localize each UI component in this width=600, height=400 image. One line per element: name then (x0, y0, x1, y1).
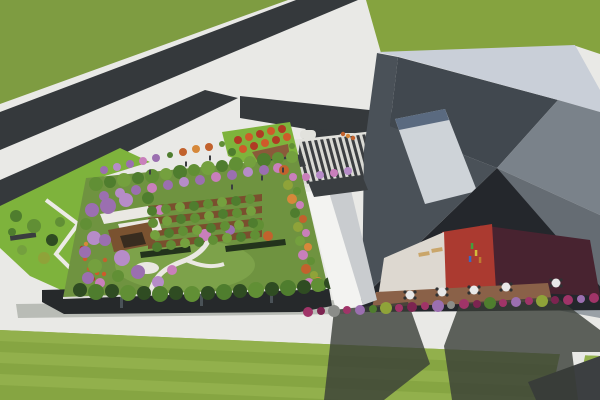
flower-icon (103, 258, 107, 262)
tree-icon (263, 231, 273, 241)
tree-icon (113, 163, 121, 171)
tree-icon (211, 172, 221, 182)
tree-icon (100, 166, 108, 174)
pedestrian-icon (209, 156, 211, 161)
tree-icon (295, 236, 305, 246)
tree-icon (257, 153, 271, 167)
shrub-icon (380, 302, 392, 314)
tree-icon (278, 125, 286, 133)
tree-icon (148, 218, 158, 228)
tree-icon (152, 286, 168, 302)
tree-icon (175, 202, 185, 212)
patio-table-icon (502, 283, 511, 292)
tree-icon (298, 250, 308, 260)
tree-icon (99, 234, 111, 246)
tree-icon (297, 280, 311, 294)
flower-icon (84, 242, 88, 246)
tree-icon (178, 226, 188, 236)
tree-icon (88, 259, 102, 273)
tree-icon (167, 265, 177, 275)
shrub-icon (343, 306, 351, 314)
person-icon (469, 256, 472, 262)
tree-icon (216, 284, 232, 300)
tree-icon (228, 148, 236, 156)
tree-icon (114, 250, 130, 266)
shrub-icon (421, 302, 429, 310)
patio-table-icon (406, 291, 415, 300)
tree-icon (163, 180, 173, 190)
tree-icon (126, 160, 134, 168)
tree-icon (206, 223, 216, 233)
tree-icon (302, 229, 310, 237)
patio-chair-icon (477, 291, 480, 294)
patio-chair-icon (403, 290, 406, 293)
tree-icon (229, 157, 243, 171)
tree-icon (152, 242, 162, 252)
tree-icon (231, 196, 241, 206)
patio-chair-icon (499, 288, 502, 291)
flower-icon (102, 272, 106, 276)
shrub-icon (511, 297, 521, 307)
tree-icon (233, 284, 247, 298)
tree-icon (46, 234, 58, 246)
person-icon (471, 243, 474, 249)
tree-icon (239, 145, 247, 153)
tree-icon (248, 218, 258, 228)
tree-icon (145, 169, 159, 183)
tree-icon (79, 246, 91, 258)
patio-chair-icon (467, 291, 470, 294)
patio-table-icon (552, 279, 561, 288)
tree-icon (105, 284, 119, 298)
tree-icon (219, 141, 225, 147)
tree-icon (89, 177, 103, 191)
pedestrian-icon (282, 168, 284, 173)
tree-icon (82, 272, 94, 284)
tree-icon (194, 237, 204, 247)
tree-icon (112, 270, 124, 282)
shrub-icon (317, 307, 325, 315)
tree-icon (142, 192, 154, 204)
tree-icon (176, 214, 186, 224)
tree-icon (192, 225, 202, 235)
tree-icon (243, 167, 253, 177)
tree-icon (307, 257, 315, 265)
pedestrian-icon (149, 170, 151, 175)
tree-icon (137, 286, 151, 300)
aerial-render (0, 0, 600, 400)
patio-chair-icon (403, 296, 406, 299)
tree-icon (100, 198, 116, 214)
pedestrian-icon (261, 176, 263, 181)
tree-icon (192, 145, 200, 153)
tree-icon (232, 208, 242, 218)
tree-icon (283, 133, 291, 141)
tree-icon (87, 231, 101, 245)
patio-chair-icon (435, 293, 438, 296)
tree-icon (220, 221, 230, 231)
tree-icon (179, 148, 187, 156)
shrub-icon (303, 307, 313, 317)
pedestrian-icon (231, 185, 233, 190)
tree-icon (301, 264, 311, 274)
tree-icon (261, 139, 269, 147)
tree-icon (244, 156, 256, 168)
tree-icon (17, 245, 27, 255)
tree-icon (147, 183, 157, 193)
shrub-icon (355, 305, 365, 315)
person-icon (475, 250, 478, 256)
tree-icon (167, 152, 173, 158)
tree-icon (117, 173, 131, 187)
tree-icon (286, 151, 298, 163)
tree-icon (38, 252, 50, 264)
tree-icon (248, 282, 264, 298)
shrub-icon (563, 295, 573, 305)
aerial-render-stage (0, 0, 600, 400)
tree-icon (267, 127, 275, 135)
patio-chair-icon (509, 288, 512, 291)
tree-icon (236, 232, 246, 242)
tree-icon (246, 206, 256, 216)
tree-icon (272, 152, 284, 164)
tree-icon (289, 143, 295, 149)
tree-icon (173, 165, 187, 179)
tree-icon (161, 204, 171, 214)
tree-icon (245, 133, 253, 141)
tree-icon (150, 230, 160, 240)
main-building (358, 45, 600, 318)
tree-icon (217, 197, 227, 207)
tree-icon (160, 168, 172, 180)
tree-icon (139, 157, 147, 165)
tree-icon (203, 199, 213, 209)
tree-icon (152, 154, 160, 162)
tree-icon (316, 171, 324, 179)
patio-chair-icon (467, 285, 470, 288)
tree-icon (164, 228, 174, 238)
tree-icon (27, 219, 41, 233)
shrub-icon (551, 296, 559, 304)
tree-icon (205, 143, 213, 151)
patio-chair-icon (445, 287, 448, 290)
tree-icon (147, 206, 157, 216)
tree-icon (119, 193, 133, 207)
tree-icon (184, 286, 200, 302)
tree-icon (166, 240, 176, 250)
tree-icon (73, 283, 87, 297)
tree-icon (302, 173, 310, 181)
tree-icon (189, 201, 199, 211)
tree-icon (296, 201, 304, 209)
tree-icon (216, 160, 228, 172)
tree-icon (287, 194, 297, 204)
shrub-icon (525, 297, 533, 305)
tree-icon (227, 170, 237, 180)
tree-icon (201, 286, 215, 300)
person-icon (479, 257, 482, 263)
tree-icon (152, 276, 164, 288)
tree-icon (256, 130, 264, 138)
flower-icon (341, 132, 345, 136)
tree-icon (218, 209, 228, 219)
tree-icon (272, 136, 280, 144)
patio-table-icon (470, 286, 479, 295)
shrub-icon (369, 305, 377, 313)
flower-icon (351, 136, 355, 140)
shrub-icon (484, 297, 496, 309)
flower-icon (346, 134, 350, 138)
tree-icon (85, 203, 99, 217)
patio-table-icon (438, 288, 447, 297)
tree-icon (195, 175, 205, 185)
patio-chair-icon (477, 285, 480, 288)
tree-icon (330, 169, 338, 177)
shrub-icon (473, 300, 481, 308)
tree-icon (169, 286, 183, 300)
tree-icon (265, 282, 279, 296)
shrub-icon (459, 299, 469, 309)
tree-icon (88, 284, 104, 300)
tree-icon (283, 180, 293, 190)
patio-chair-icon (445, 293, 448, 296)
tree-icon (190, 213, 200, 223)
shrub-icon (395, 304, 403, 312)
patio-chair-icon (413, 296, 416, 299)
tree-icon (293, 187, 301, 195)
patio-chair-icon (435, 287, 438, 290)
tree-icon (304, 243, 312, 251)
tree-icon (55, 217, 65, 227)
tree-icon (222, 233, 232, 243)
patio-chair-icon (549, 284, 552, 287)
tree-icon (293, 222, 303, 232)
patio-chair-icon (559, 284, 562, 287)
pedestrian-icon (185, 162, 187, 167)
tree-icon (290, 208, 300, 218)
shrub-icon (536, 295, 548, 307)
tree-icon (8, 228, 16, 236)
tree-icon (245, 194, 255, 204)
tree-icon (132, 172, 144, 184)
tree-icon (131, 185, 141, 195)
tree-icon (80, 218, 92, 230)
tree-icon (311, 278, 325, 292)
patio-chair-icon (559, 278, 562, 281)
tree-icon (179, 177, 189, 187)
tree-icon (208, 235, 218, 245)
shrub-icon (328, 305, 340, 317)
patio-chair-icon (509, 282, 512, 285)
shrub-icon (577, 295, 585, 303)
tree-icon (162, 216, 172, 226)
tree-icon (259, 165, 269, 175)
patio-chair-icon (413, 290, 416, 293)
shrub-icon (499, 299, 507, 307)
tree-icon (289, 173, 297, 181)
tree-icon (280, 280, 296, 296)
tree-icon (104, 176, 116, 188)
patio-chair-icon (499, 282, 502, 285)
tree-icon (131, 265, 145, 279)
tree-icon (234, 220, 244, 230)
tree-icon (344, 167, 352, 175)
tree-icon (204, 211, 214, 221)
patio-chair-icon (549, 278, 552, 281)
tree-icon (180, 238, 190, 248)
tree-icon (250, 230, 260, 240)
tree-icon (234, 136, 242, 144)
tree-icon (188, 164, 200, 176)
tree-icon (10, 210, 22, 222)
tree-icon (120, 285, 136, 301)
tree-icon (299, 215, 307, 223)
shrub-icon (589, 293, 599, 303)
shrub-icon (432, 300, 444, 312)
shrub-icon (407, 302, 417, 312)
shrub-icon (447, 301, 455, 309)
tree-icon (250, 142, 258, 150)
tree-icon (201, 161, 215, 175)
